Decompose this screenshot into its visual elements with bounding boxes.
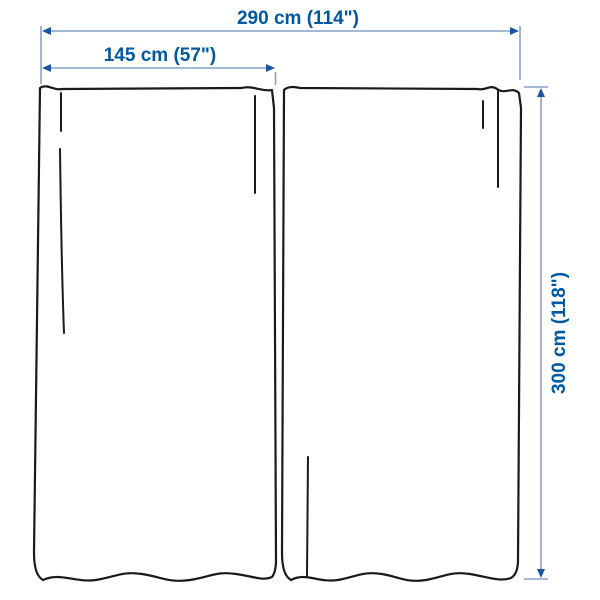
height-label: 300 cm (118") xyxy=(549,272,570,394)
curtain-panel-right xyxy=(282,87,521,581)
arrow-up-icon xyxy=(537,88,545,97)
panel-width-dimension: 145 cm (57") xyxy=(42,45,276,85)
arrow-right-icon xyxy=(266,64,275,72)
arrow-right-icon xyxy=(510,27,519,35)
curtain-dimension-diagram: 290 cm (114") 145 cm (57") 300 cm (118") xyxy=(0,0,600,600)
height-dimension: 300 cm (118") xyxy=(524,87,570,579)
panel-width-label: 145 cm (57") xyxy=(104,45,217,66)
fold-line xyxy=(307,457,308,576)
arrow-left-icon xyxy=(42,64,51,72)
diagram-canvas: 290 cm (114") 145 cm (57") 300 cm (118") xyxy=(0,0,600,600)
arrow-down-icon xyxy=(537,569,545,578)
arrow-left-icon xyxy=(42,27,51,35)
curtain-panel-left xyxy=(34,86,276,580)
total-width-label: 290 cm (114") xyxy=(237,8,359,29)
